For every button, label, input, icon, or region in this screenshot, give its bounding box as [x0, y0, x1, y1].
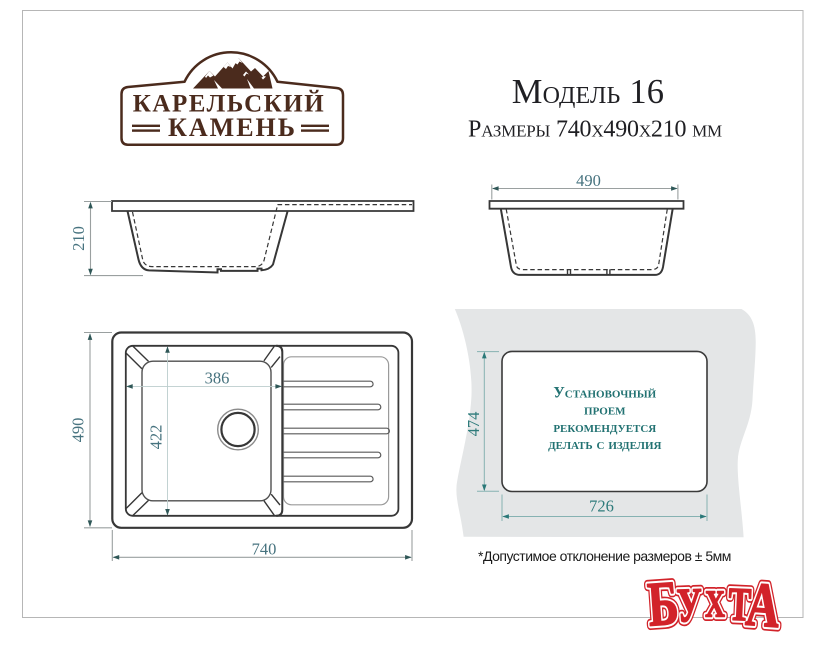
svg-text:У: У	[676, 579, 703, 633]
svg-text:Установочный: Установочный	[553, 385, 656, 402]
svg-text:474: 474	[464, 412, 483, 437]
svg-text:740: 740	[252, 540, 277, 559]
svg-text:Модель 16: Модель 16	[512, 73, 665, 111]
svg-text:Размеры 740x490x210 мм: Размеры 740x490x210 мм	[468, 117, 722, 143]
svg-text:Б: Б	[645, 568, 680, 640]
svg-text:КАМЕНЬ: КАМЕНЬ	[168, 113, 297, 142]
svg-text:А: А	[744, 569, 783, 640]
svg-text:422: 422	[147, 425, 166, 450]
svg-text:проем: проем	[584, 402, 626, 419]
svg-text:490: 490	[69, 418, 88, 443]
svg-text:*Допустимое отклонение размеро: *Допустимое отклонение размеров ± 5мм	[478, 548, 731, 564]
svg-text:386: 386	[205, 369, 230, 388]
svg-text:210: 210	[69, 226, 88, 251]
svg-text:Х: Х	[705, 583, 725, 625]
svg-text:рекомендуется: рекомендуется	[553, 419, 656, 436]
svg-text:делать с изделия: делать с изделия	[548, 436, 661, 453]
svg-text:490: 490	[576, 171, 601, 190]
svg-text:726: 726	[589, 497, 614, 516]
